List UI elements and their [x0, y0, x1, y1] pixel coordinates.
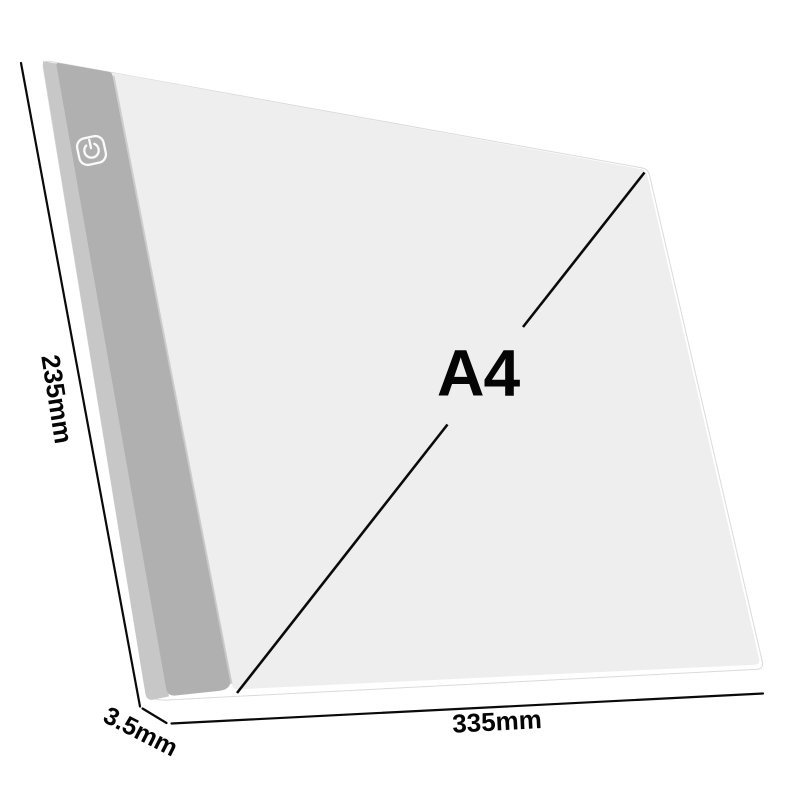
dimension-label-thickness: 3.5mm	[99, 701, 182, 762]
dimension-label-bottom: 335mm	[451, 704, 542, 739]
dimension-label-left: 235mm	[35, 352, 79, 445]
light-pad-dimension-diagram: A4 235mm 3.5mm 335mm	[0, 0, 800, 800]
size-label: A4	[437, 336, 521, 410]
product-illustration: A4 235mm 3.5mm 335mm	[0, 0, 800, 800]
